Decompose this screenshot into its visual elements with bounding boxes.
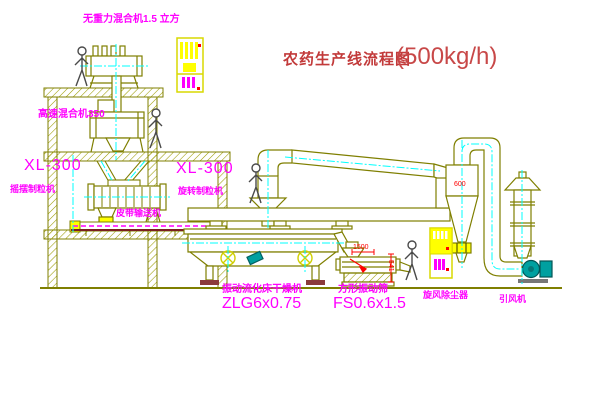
label-gravity-mixer: 无重力混合机1.5 立方 <box>83 15 180 25</box>
label-granulator-left-model: XL-300 <box>24 158 82 174</box>
control-cabinet-2 <box>430 228 452 278</box>
dim-sieve-length: 1500 <box>353 244 369 251</box>
control-cabinet-1 <box>177 38 203 92</box>
label-cyclone-name: 旋风除尘器 <box>423 291 468 300</box>
label-dryer-name: 振动流化床干燥机 <box>222 285 302 295</box>
diagram-canvas: 农药生产线流程图 (500kg/h) 无重力混合机1.5 立方 高速混合机350… <box>0 0 600 403</box>
dim-sieve-height: 541 <box>387 260 394 272</box>
floor-slab <box>44 88 163 97</box>
square-sieve <box>336 242 410 286</box>
label-granulator-left-name: 摇摆制粒机 <box>10 185 55 194</box>
label-fan-name: 引风机 <box>499 295 526 304</box>
diagram-title: 农药生产线流程图 <box>283 52 411 67</box>
label-belt-conveyor: 皮带输送机 <box>116 209 161 218</box>
induced-draft-fan <box>518 261 552 284</box>
diagram-title-capacity: (500kg/h) <box>396 45 497 69</box>
label-dryer-model: ZLG6x0.75 <box>222 296 301 312</box>
person-figure <box>405 241 418 280</box>
dim-cyclone-diameter: 600 <box>454 181 466 188</box>
label-granulator-right-name: 旋转制粒机 <box>178 187 223 196</box>
label-sieve-name: 方形振动筛 <box>338 285 388 295</box>
label-granulator-right-model: XL-300 <box>176 161 234 177</box>
label-high-speed-mixer: 高速混合机350 <box>38 110 105 120</box>
label-sieve-model: FS0.6x1.5 <box>333 296 406 312</box>
